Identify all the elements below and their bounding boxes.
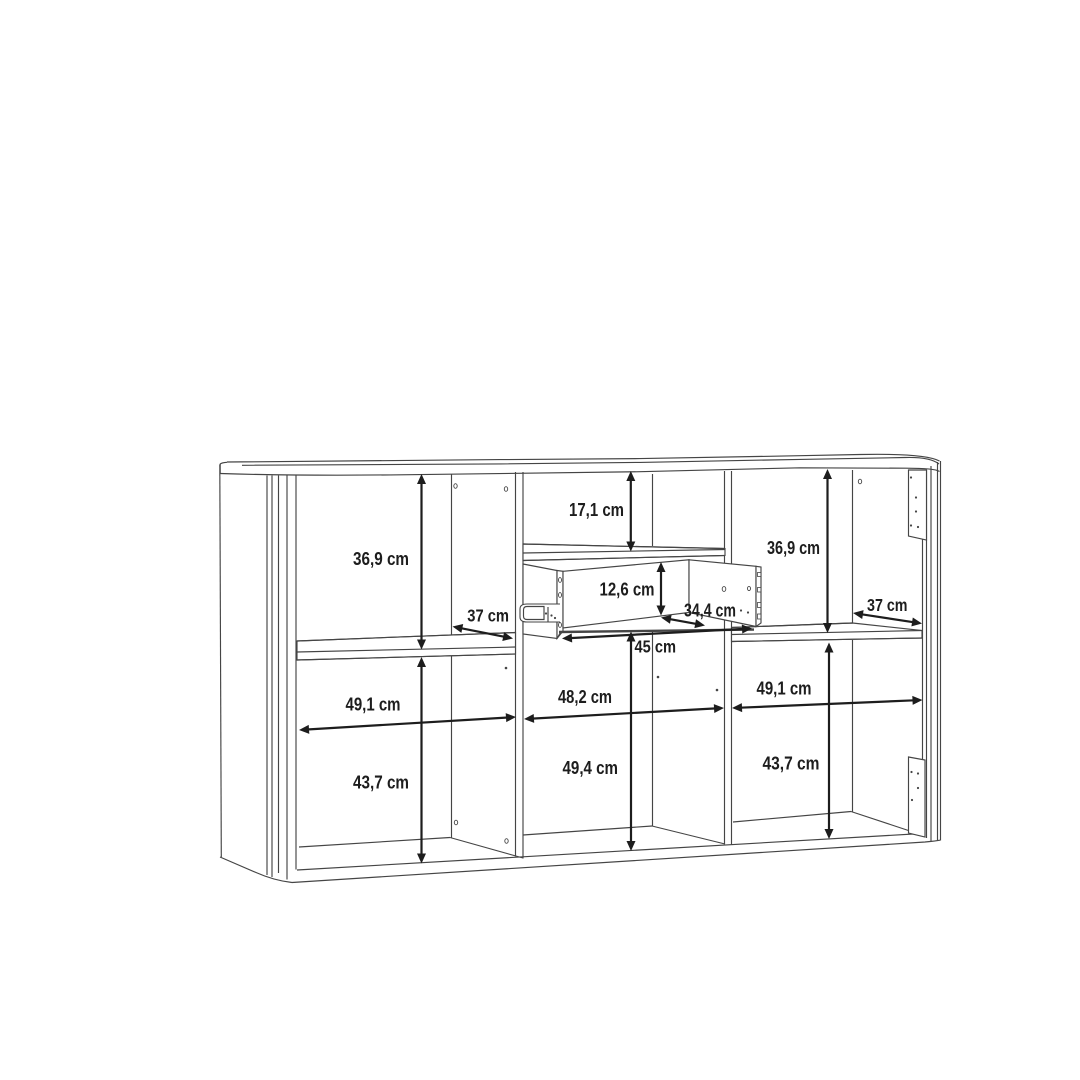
svg-text:37 cm: 37 cm (867, 595, 908, 615)
svg-text:34,4 cm: 34,4 cm (684, 600, 736, 621)
svg-text:17,1 cm: 17,1 cm (569, 499, 624, 520)
svg-text:37 cm: 37 cm (467, 606, 509, 626)
svg-text:48,2 cm: 48,2 cm (558, 686, 612, 707)
svg-text:49,1 cm: 49,1 cm (346, 694, 401, 715)
svg-text:49,1 cm: 49,1 cm (757, 678, 812, 699)
svg-text:45 cm: 45 cm (635, 637, 677, 657)
svg-text:36,9 cm: 36,9 cm (353, 548, 409, 569)
svg-text:43,7 cm: 43,7 cm (763, 752, 820, 773)
svg-text:43,7 cm: 43,7 cm (353, 772, 409, 793)
svg-text:12,6 cm: 12,6 cm (600, 579, 655, 600)
svg-text:49,4 cm: 49,4 cm (563, 757, 619, 778)
svg-text:36,9 cm: 36,9 cm (767, 537, 820, 558)
